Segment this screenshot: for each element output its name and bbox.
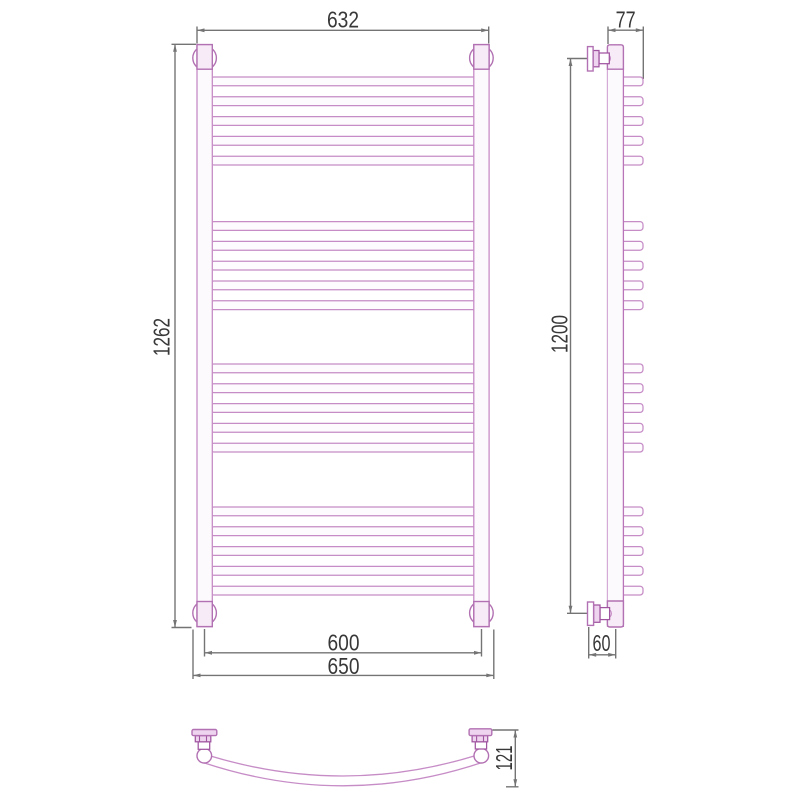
svg-text:650: 650 xyxy=(328,653,360,679)
svg-text:77: 77 xyxy=(616,7,636,33)
svg-text:1262: 1262 xyxy=(149,318,175,356)
svg-text:600: 600 xyxy=(328,630,360,656)
svg-text:1200: 1200 xyxy=(546,315,572,353)
svg-text:60: 60 xyxy=(593,630,611,656)
svg-text:632: 632 xyxy=(327,7,359,33)
svg-text:121: 121 xyxy=(491,746,517,771)
